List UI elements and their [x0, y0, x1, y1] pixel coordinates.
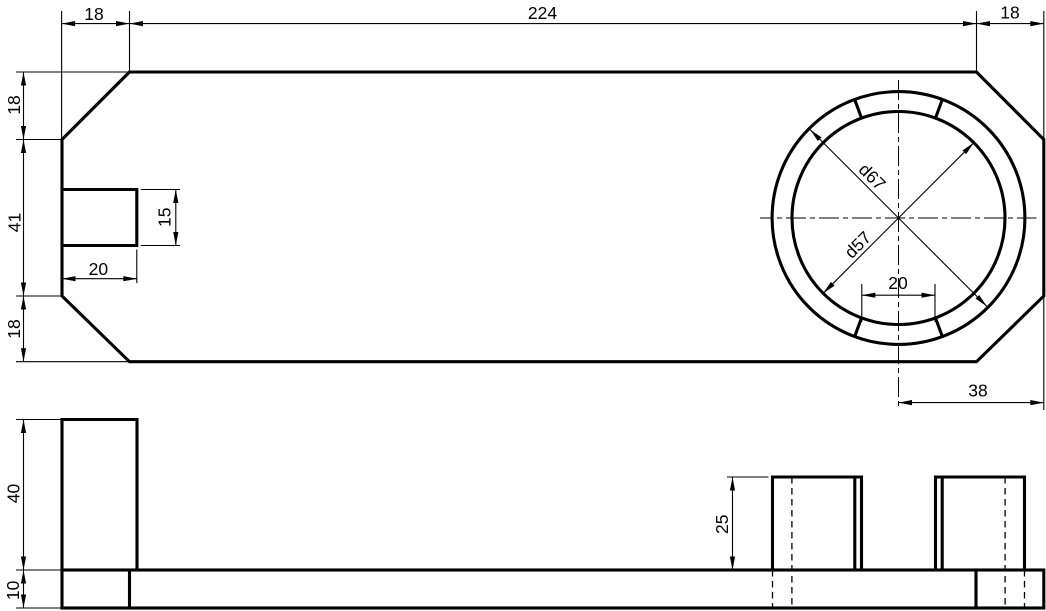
svg-text:20: 20 — [89, 259, 109, 279]
svg-text:18: 18 — [4, 95, 24, 114]
svg-text:15: 15 — [155, 208, 175, 227]
svg-text:10: 10 — [3, 580, 23, 600]
svg-text:18: 18 — [1000, 3, 1019, 23]
svg-text:20: 20 — [888, 273, 908, 293]
svg-text:38: 38 — [968, 381, 987, 401]
svg-text:40: 40 — [3, 484, 23, 504]
svg-text:224: 224 — [528, 3, 557, 23]
svg-text:41: 41 — [4, 213, 24, 232]
svg-text:18: 18 — [84, 4, 103, 24]
svg-text:25: 25 — [712, 515, 732, 534]
svg-text:18: 18 — [4, 319, 24, 338]
